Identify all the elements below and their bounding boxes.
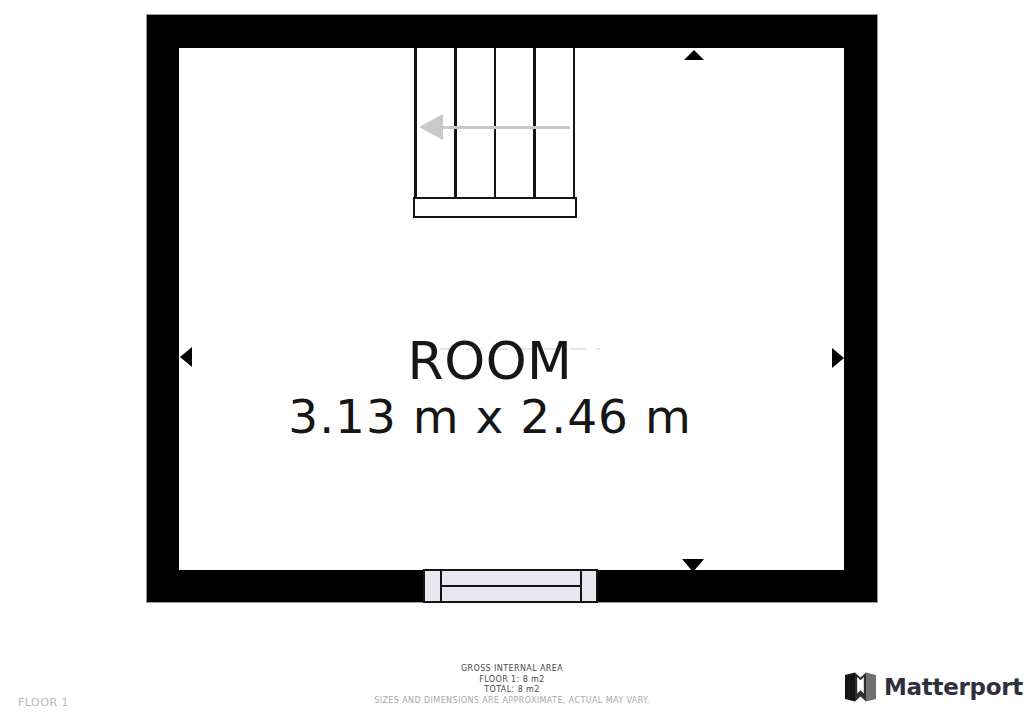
matterport-wordmark: Matterport [884,674,1023,700]
stair-landing-step [413,197,577,218]
dimension-arrow-left-icon [180,347,192,367]
dimension-arrow-right-icon [832,348,844,368]
area-summary: GROSS INTERNAL AREA FLOOR 1: 8 m2 TOTAL:… [312,664,712,706]
stair-tread-line [454,48,457,197]
floorplan-page: ROOM 3.13 m x 2.46 m GROSS INTERNAL AREA… [0,0,1024,724]
stair-tread-line [573,48,576,197]
room-label-block: ROOM 3.13 m x 2.46 m [288,333,691,445]
window-rail [442,585,580,587]
floor-area-value: FLOOR 1: 8 m2 [312,675,712,686]
stair-direction-arrow-icon [419,114,443,140]
matterport-logo-icon [845,672,876,702]
stair-tread-line [533,48,536,197]
stair-tread-line [494,48,497,197]
stair-direction-arrow-shaft [438,126,570,129]
matterport-logo: Matterport [845,671,1023,703]
window [423,569,598,603]
room-name: ROOM [288,333,691,389]
disclaimer-text: SIZES AND DIMENSIONS ARE APPROXIMATE, AC… [312,696,712,707]
gross-area-title: GROSS INTERNAL AREA [312,664,712,675]
dimension-arrow-down-icon [682,559,704,572]
stair-tread-line [414,48,417,197]
window-mullion [580,571,582,601]
room-dimensions: 3.13 m x 2.46 m [288,389,691,445]
dimension-arrow-up-icon [684,50,704,60]
floor-label: FLOOR 1 [18,696,69,709]
total-area-value: TOTAL: 8 m2 [312,685,712,696]
